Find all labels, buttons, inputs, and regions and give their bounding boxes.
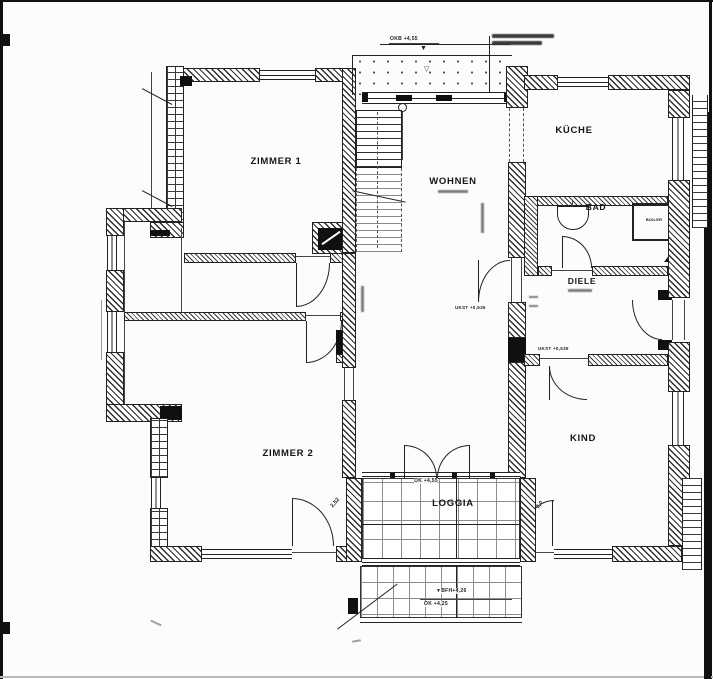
door-sill <box>552 270 592 271</box>
door-leaf <box>469 445 470 478</box>
door-arc <box>478 260 510 302</box>
floor-height-annotation: ▼BFH+4,26 <box>436 588 467 594</box>
exterior-wall-right <box>668 180 690 298</box>
lintel-annotation: UKST +0,535 <box>538 346 569 351</box>
bay-window <box>107 236 117 270</box>
staircase-lower-flight <box>356 168 402 252</box>
open-passage <box>523 108 524 162</box>
interior-wall <box>184 253 296 263</box>
window-mullion <box>436 95 452 101</box>
basin-tap <box>572 201 573 207</box>
door-sill <box>540 358 588 359</box>
hall-west-face <box>181 228 182 312</box>
interior-wall-middle <box>124 312 306 321</box>
boiler-label: BOILER <box>646 217 662 222</box>
annotation-underline <box>389 43 439 44</box>
opening-jamb <box>353 368 354 400</box>
level-marker-icon: ▼ <box>420 45 427 52</box>
room-label-kueche: KÜCHE <box>555 125 592 136</box>
terrace-marker-icon: ▽ <box>424 66 429 73</box>
door-sill <box>684 300 685 340</box>
door-arc <box>562 236 592 268</box>
illegible-area-note <box>568 289 592 292</box>
door-width-annotation: 2,52 <box>330 497 341 509</box>
window-mullion <box>396 95 412 101</box>
loggia-pier-left <box>346 478 362 562</box>
illegible-area-note <box>438 190 468 193</box>
door-leaf <box>478 260 479 302</box>
wohnen-wall-right <box>508 302 526 338</box>
exterior-wall-right <box>668 90 690 118</box>
stair-start-circle <box>398 103 407 112</box>
scan-border-left <box>0 0 3 679</box>
scan-border-bottom <box>0 676 713 678</box>
room-label-zimmer1: ZIMMER 1 <box>251 156 302 167</box>
dimension-line <box>380 44 510 45</box>
scan-speck <box>150 620 162 627</box>
door-leaf <box>562 236 563 268</box>
door-leaf <box>552 500 553 546</box>
diele-wall-top <box>538 266 552 276</box>
illegible-note <box>492 41 542 45</box>
floor-plan: OKB +4,55 ▼ ▽ ZIMMER 1 <box>0 0 713 679</box>
loggia-pier-right <box>520 478 536 562</box>
loggia-joint <box>456 478 457 560</box>
kind-wall-top <box>524 354 540 366</box>
loggia-parapet-bottom <box>362 558 520 566</box>
entry-door-arc <box>632 300 662 340</box>
annotation-underline <box>420 599 512 600</box>
kind-window-right <box>672 392 684 445</box>
door-leaf <box>549 366 550 400</box>
exterior-wall-top <box>524 75 558 90</box>
door-leaf <box>292 498 293 546</box>
room-label-kind: KIND <box>570 433 596 444</box>
corner-fill <box>348 598 358 614</box>
scan-speck <box>352 639 361 643</box>
scan-notch <box>3 34 10 46</box>
zimmer2-window-bottom <box>202 549 292 559</box>
washbasin <box>557 206 589 230</box>
stair-rail <box>377 112 378 248</box>
bad-wall-left <box>524 196 538 276</box>
door-arc <box>296 263 330 307</box>
room-label-loggia: LOGGIA <box>432 498 474 509</box>
loggia-joint <box>362 524 520 525</box>
illegible-note <box>492 34 554 38</box>
wohnen-wall-left <box>342 68 356 253</box>
wall-ledge-fill <box>150 230 170 236</box>
bfh-text: BFH+4,26 <box>441 588 466 594</box>
door-leaf <box>296 263 297 307</box>
opening-jamb <box>344 368 345 400</box>
dimension-tick <box>529 305 538 307</box>
illegible-vertical-note <box>361 286 364 312</box>
door-jamb <box>511 258 512 302</box>
exterior-wall-bottom <box>612 546 682 562</box>
exterior-wall-top <box>608 75 690 90</box>
door-sill <box>292 552 336 553</box>
room-label-wohnen: WOHNEN <box>429 176 476 187</box>
room-label-diele: DIELE <box>568 276 597 286</box>
level-annotation: OK +4,25 <box>424 601 448 607</box>
stair-leader <box>402 112 403 160</box>
french-door-arc-right <box>437 445 470 478</box>
wall-corner-fill <box>180 76 192 86</box>
kind-window-bottom <box>554 549 612 559</box>
open-passage <box>509 108 510 162</box>
door-jamb <box>521 258 522 302</box>
room-label-bad: BAD <box>586 202 607 212</box>
room-label-zimmer2: ZIMMER 2 <box>263 448 314 459</box>
door-leaf <box>306 321 307 363</box>
door-sill <box>306 315 340 316</box>
neighbor-wall-strip <box>692 95 708 228</box>
terrace-edge <box>352 55 353 95</box>
kueche-window-right <box>672 118 684 180</box>
terrace-edge <box>360 622 522 623</box>
window-jamb <box>362 93 368 102</box>
door-leaf <box>404 445 405 478</box>
wohnen-wall-right <box>508 362 526 478</box>
exterior-wall-right <box>668 342 690 392</box>
neighbor-wall-strip <box>682 478 702 570</box>
bay-wall-left <box>106 270 124 312</box>
door-arc <box>549 366 587 400</box>
zimmer2-window-left <box>151 478 161 508</box>
wohnen-wall-left <box>342 400 356 478</box>
dimension-tick <box>101 300 102 360</box>
roof-terrace <box>352 55 512 95</box>
scan-notch <box>3 622 10 634</box>
french-door-arc-left <box>404 445 437 478</box>
door-sill <box>672 300 673 340</box>
lintel-annotation: UKST +0,535 <box>455 305 486 310</box>
exterior-wall-bottom <box>150 546 202 562</box>
door-sill <box>296 256 330 257</box>
kind-wall-top <box>588 354 668 366</box>
loggia-level-annotation: OK +4,55 <box>414 478 438 484</box>
scan-border-top <box>0 0 713 2</box>
diele-wall-top <box>592 266 668 276</box>
bay-window <box>107 312 117 352</box>
loggia-floor <box>362 478 520 560</box>
illegible-vertical-note <box>481 203 484 233</box>
wohnen-wall-left <box>342 253 356 368</box>
door-arc <box>292 498 334 546</box>
staircase-upper-flight <box>356 110 402 168</box>
kueche-window-top <box>558 77 608 87</box>
dimension-tick <box>529 296 538 298</box>
exterior-wall-left <box>150 418 168 478</box>
zimmer1-window <box>260 70 315 80</box>
bay-wall-left <box>106 208 124 236</box>
level-annotation: OKB +4,55 <box>390 36 418 42</box>
